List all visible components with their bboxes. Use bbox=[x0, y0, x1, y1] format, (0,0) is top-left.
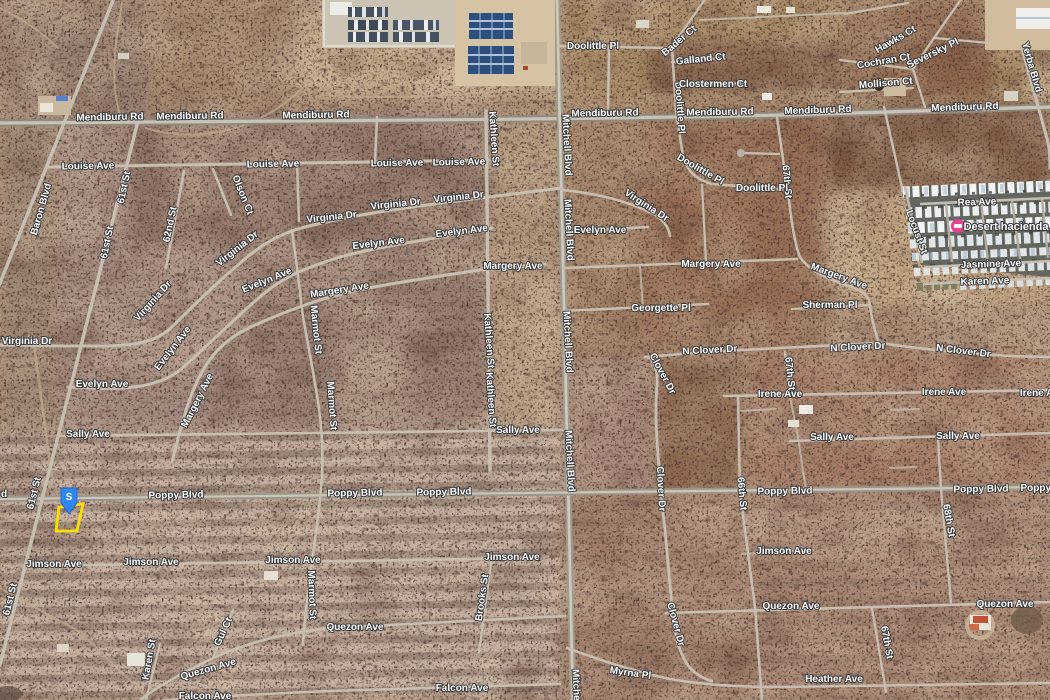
svg-text:Sally Ave: Sally Ave bbox=[66, 429, 110, 440]
svg-text:Mendiburu Rd: Mendiburu Rd bbox=[784, 104, 852, 117]
svg-text:Jimson Ave: Jimson Ave bbox=[123, 557, 179, 568]
svg-text:Poppy Blvd: Poppy Blvd bbox=[757, 486, 812, 498]
svg-text:Jasmine Ave: Jasmine Ave bbox=[961, 258, 1022, 271]
svg-text:Mitchell Blvd: Mitchell Blvd bbox=[569, 669, 583, 700]
svg-text:Sherman Pl: Sherman Pl bbox=[802, 300, 857, 311]
svg-text:Heather Ave: Heather Ave bbox=[805, 674, 863, 685]
svg-text:Evelyn Ave: Evelyn Ave bbox=[76, 379, 129, 390]
svg-text:Louise Ave: Louise Ave bbox=[371, 158, 424, 170]
svg-text:Louise Ave: Louise Ave bbox=[62, 161, 115, 173]
svg-text:Poppy Blvd: Poppy Blvd bbox=[327, 488, 382, 500]
svg-text:Desert hacienda: Desert hacienda bbox=[964, 221, 1050, 233]
svg-text:Poppy Blvd: Poppy Blvd bbox=[953, 484, 1008, 496]
svg-text:Irene Ave: Irene Ave bbox=[758, 389, 803, 400]
svg-text:d: d bbox=[1, 489, 7, 500]
svg-text:Falcon Ave: Falcon Ave bbox=[179, 691, 232, 700]
svg-text:Mendiburu Rd: Mendiburu Rd bbox=[931, 101, 999, 114]
svg-text:Sally Ave: Sally Ave bbox=[496, 425, 540, 436]
svg-text:Jimson Ave: Jimson Ave bbox=[265, 555, 321, 566]
svg-text:Jimson Ave: Jimson Ave bbox=[26, 559, 82, 570]
svg-text:Margery Ave: Margery Ave bbox=[681, 259, 741, 270]
svg-text:Karen Ave: Karen Ave bbox=[960, 275, 1010, 288]
svg-text:Quezon Ave: Quezon Ave bbox=[976, 599, 1033, 610]
svg-text:Rea Ave: Rea Ave bbox=[957, 196, 997, 208]
svg-text:Doolittle Pl: Doolittle Pl bbox=[736, 183, 788, 194]
svg-text:Quezon Ave: Quezon Ave bbox=[326, 622, 383, 633]
svg-text:Quezon Ave: Quezon Ave bbox=[762, 601, 819, 612]
svg-text:Louise Ave: Louise Ave bbox=[247, 159, 300, 171]
svg-text:Jimson Ave: Jimson Ave bbox=[484, 552, 540, 563]
svg-text:Georgette Pl: Georgette Pl bbox=[631, 303, 691, 314]
svg-text:Clostermen Ct: Clostermen Ct bbox=[679, 79, 748, 90]
svg-text:Sally Ave: Sally Ave bbox=[936, 431, 980, 442]
svg-text:Poppy Blvd: Poppy Blvd bbox=[416, 487, 471, 499]
svg-text:Mendiburu Rd: Mendiburu Rd bbox=[156, 110, 223, 122]
svg-text:Mendiburu Rd: Mendiburu Rd bbox=[76, 111, 143, 123]
svg-text:Mendiburu Rd: Mendiburu Rd bbox=[282, 109, 349, 121]
svg-text:Mendiburu Rd: Mendiburu Rd bbox=[571, 107, 638, 119]
svg-text:Margery Ave: Margery Ave bbox=[483, 261, 543, 272]
svg-text:Evelyn Ave: Evelyn Ave bbox=[574, 225, 627, 236]
svg-text:Louise Ave: Louise Ave bbox=[433, 157, 486, 169]
svg-text:Falcon Ave: Falcon Ave bbox=[436, 683, 489, 694]
svg-text:Sally Ave: Sally Ave bbox=[810, 432, 854, 443]
svg-text:Irene Ave: Irene Ave bbox=[1020, 388, 1050, 399]
svg-text:Jimson Ave: Jimson Ave bbox=[756, 546, 812, 557]
svg-text:Poppy Blvd: Poppy Blvd bbox=[1020, 483, 1050, 494]
svg-text:S: S bbox=[66, 492, 73, 503]
svg-text:Poppy Blvd: Poppy Blvd bbox=[148, 490, 203, 502]
svg-text:Virginia Dr: Virginia Dr bbox=[2, 336, 52, 347]
svg-text:Doolittle Pl: Doolittle Pl bbox=[567, 41, 619, 52]
svg-text:Mendiburu Rd: Mendiburu Rd bbox=[686, 106, 753, 118]
svg-text:Marmot St: Marmot St bbox=[305, 570, 318, 620]
svg-text:Irene Ave: Irene Ave bbox=[922, 387, 967, 398]
